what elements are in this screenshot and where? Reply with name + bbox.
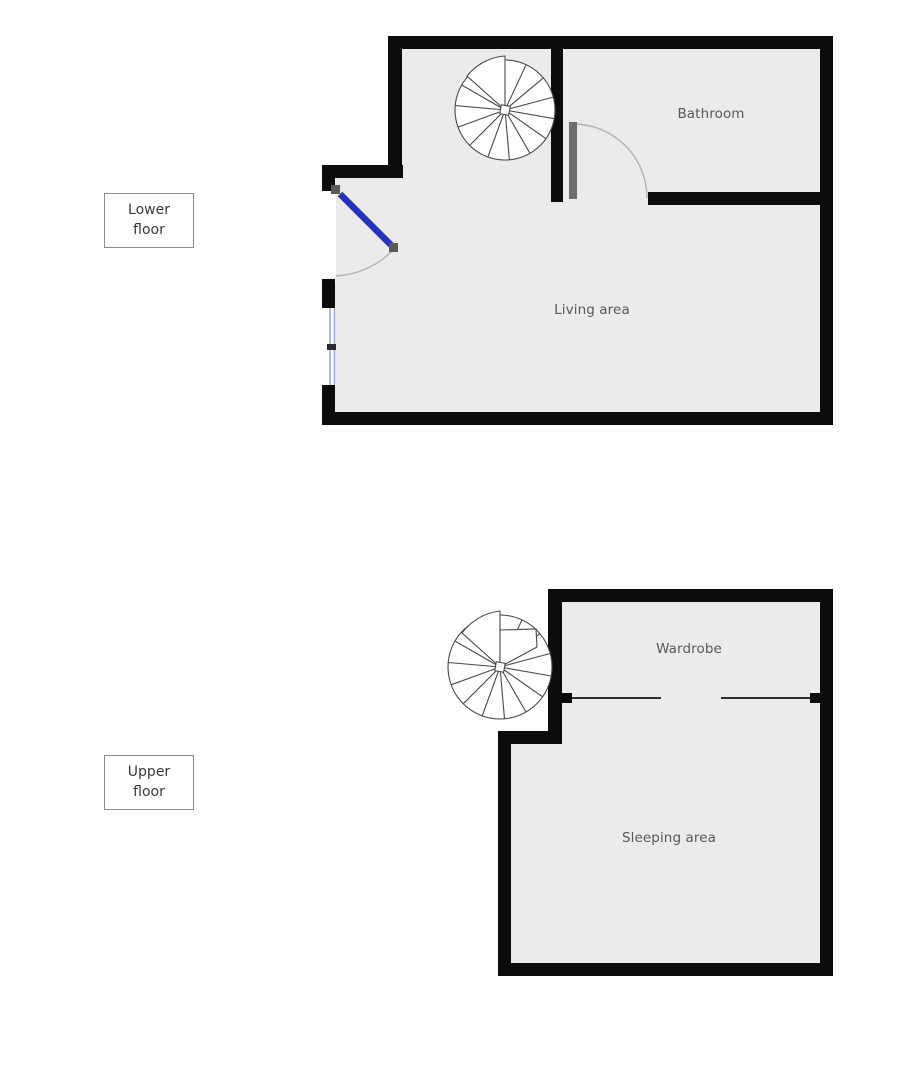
window-mid-tick [327,344,336,350]
wall-bottom [498,963,833,976]
upper-floor-plan [448,589,833,976]
lower-floor-label-line1: Lower [128,201,170,221]
staircase-center-post [495,662,505,672]
entry-door-opening [322,188,336,282]
room-label-living-area: Living area [554,302,630,318]
wall-left-upper [388,36,402,165]
wall-right [820,589,833,976]
staircase-center-post [500,105,510,115]
upper-floor-label-box: Upper floor [104,755,194,810]
lower-floor-label-line2: floor [133,221,165,241]
entry-door-end-cap [389,243,398,252]
floorplan-page: Lower floor Upper floor Bathroom Living … [0,0,914,1080]
upper-floor-label-line1: Upper [128,763,170,783]
wall-left-lower [498,731,511,976]
wall-bathroom [648,192,820,205]
wardrobe-divider-cap-right [810,693,821,703]
wall-bottom [322,412,833,425]
room-label-wardrobe: Wardrobe [656,641,722,657]
floor-plans-canvas [0,0,914,1080]
room-label-sleeping-area: Sleeping area [622,830,716,846]
wall-top [548,589,833,602]
wardrobe-divider-cap-left [561,693,572,703]
entry-door-hinge [331,185,340,194]
lower-floor-label-box: Lower floor [104,193,194,248]
lower-floor-plan [322,36,833,425]
wall-top [388,36,833,49]
wall-left-below-window [322,385,335,425]
upper-floor-label-line2: floor [133,783,165,803]
wall-left-between [322,279,335,308]
bathroom-door-leaf [569,122,577,199]
wall-right [820,36,833,425]
spiral-staircase-icon [448,611,552,719]
room-label-bathroom: Bathroom [677,106,744,122]
